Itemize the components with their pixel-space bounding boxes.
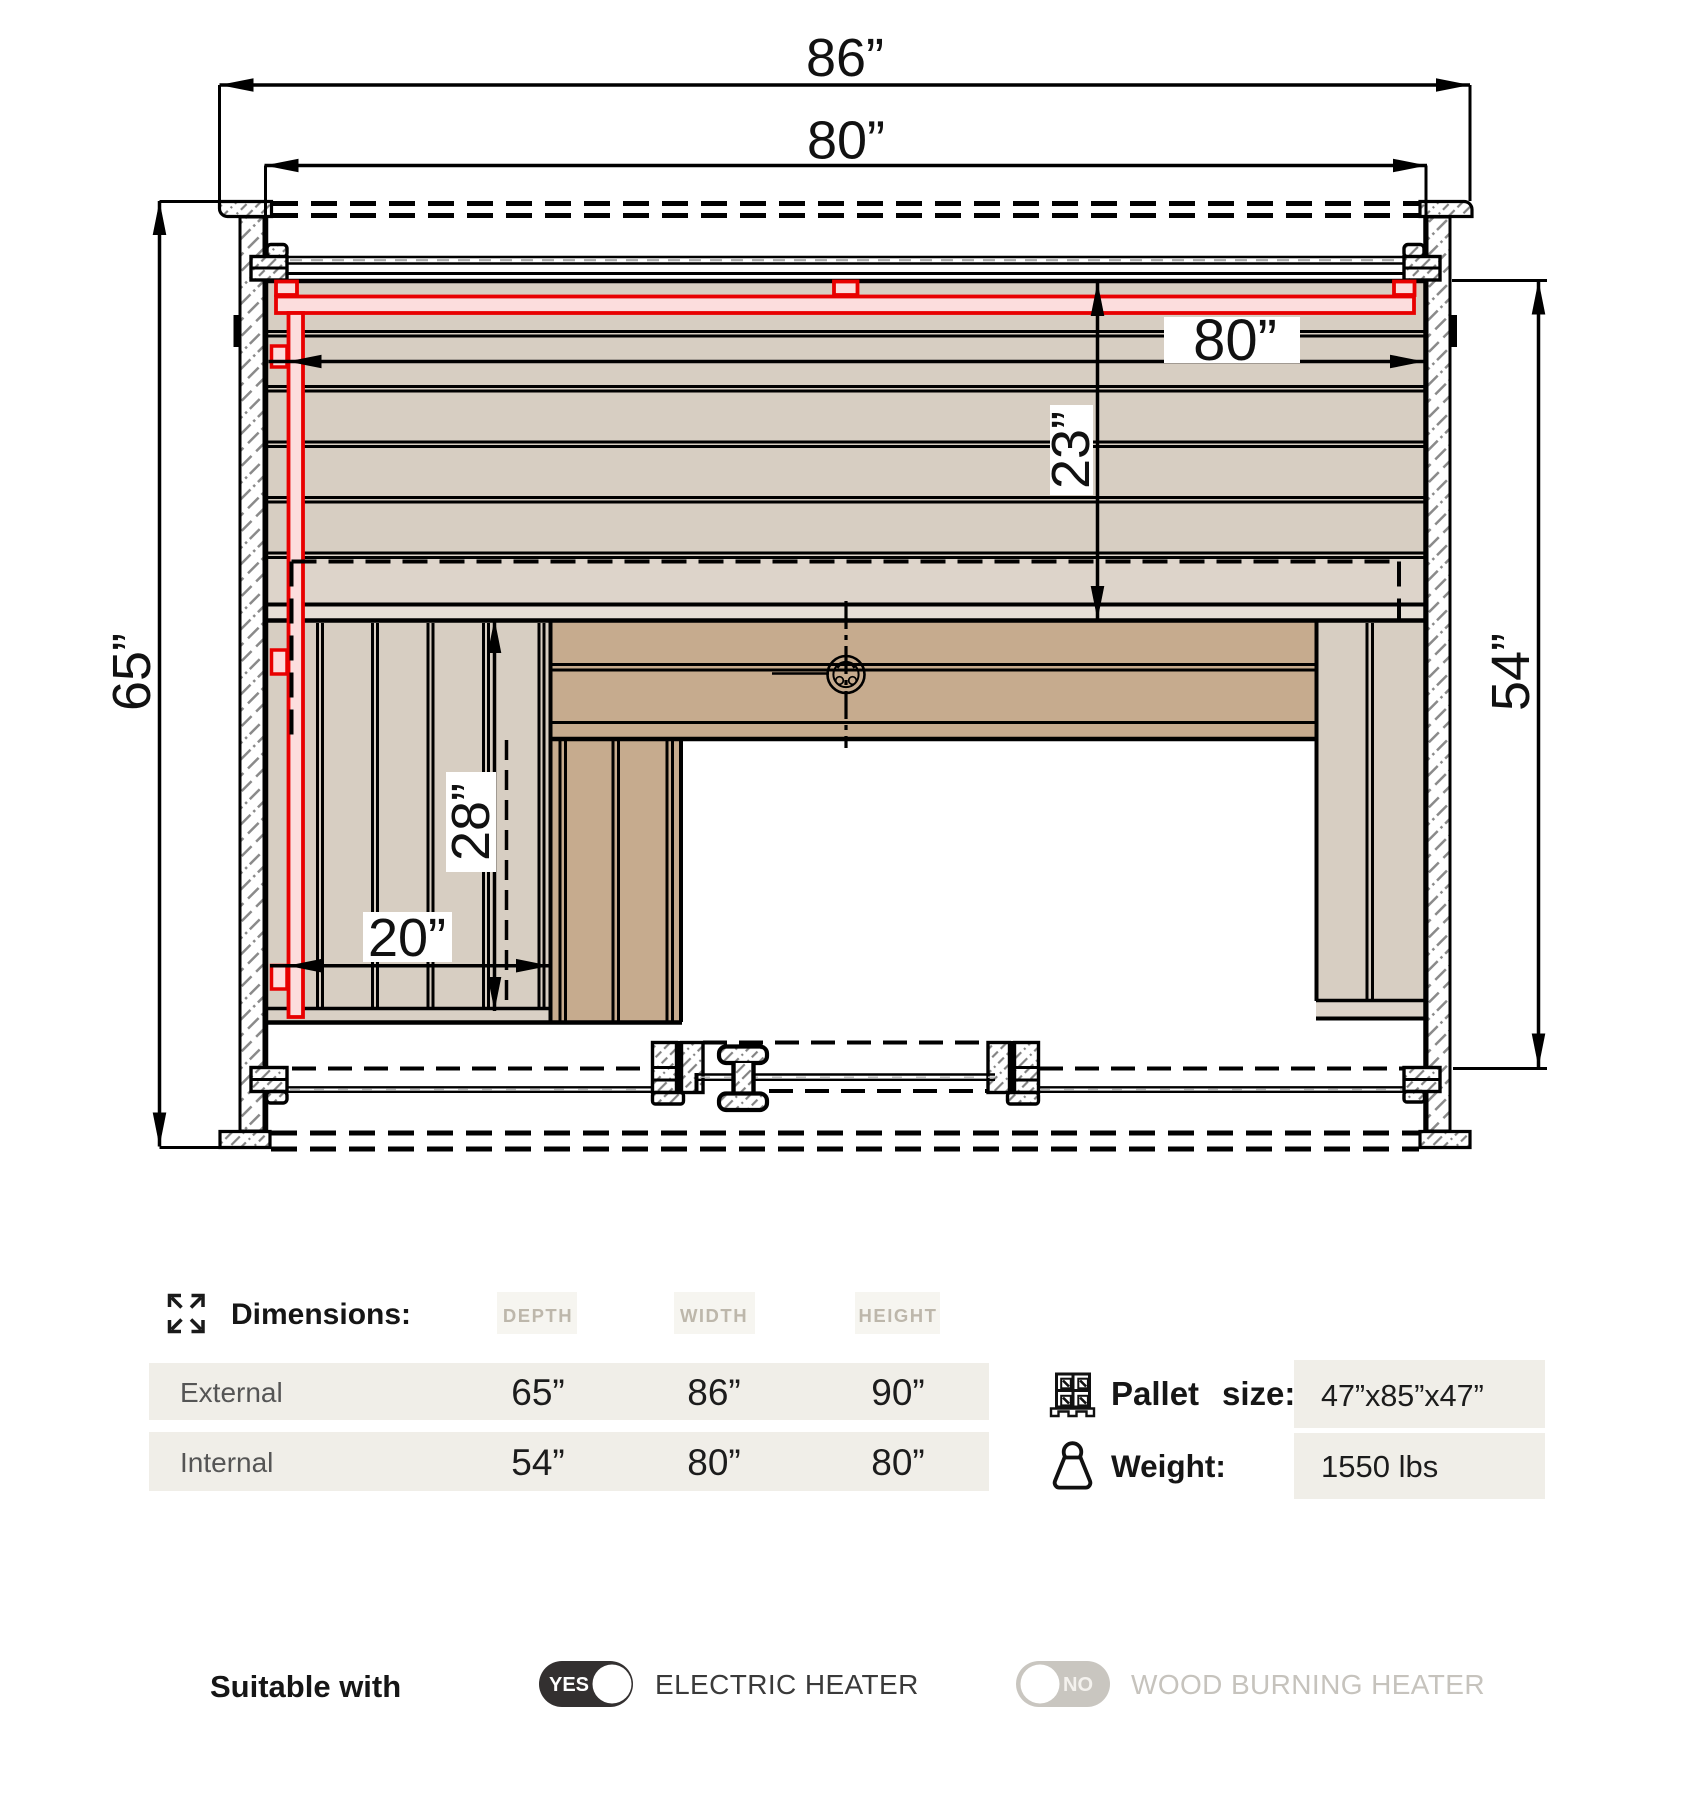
svg-text:47”x85”x47”: 47”x85”x47” <box>1321 1379 1484 1413</box>
svg-text:86”: 86” <box>806 28 884 88</box>
svg-text:80”: 80” <box>687 1442 740 1483</box>
svg-text:80”: 80” <box>1193 308 1277 373</box>
svg-text:Weight:: Weight: <box>1111 1448 1226 1484</box>
svg-text:NO: NO <box>1063 1674 1093 1696</box>
svg-text:Internal: Internal <box>180 1447 273 1478</box>
svg-text:65”: 65” <box>511 1372 564 1413</box>
svg-text:28”: 28” <box>441 783 501 861</box>
svg-text:23”: 23” <box>1041 411 1101 489</box>
svg-text:20”: 20” <box>368 908 446 968</box>
svg-text:WOOD BURNING HEATER: WOOD BURNING HEATER <box>1131 1669 1485 1700</box>
svg-text:54”: 54” <box>1481 633 1541 711</box>
svg-text:External: External <box>180 1377 283 1408</box>
svg-text:80”: 80” <box>871 1442 924 1483</box>
svg-text:ELECTRIC HEATER: ELECTRIC HEATER <box>655 1669 919 1700</box>
svg-text:HEIGHT: HEIGHT <box>859 1305 938 1326</box>
svg-text:DEPTH: DEPTH <box>503 1305 573 1326</box>
svg-text:1550 lbs: 1550 lbs <box>1321 1449 1438 1484</box>
svg-text:Pallet: Pallet <box>1111 1375 1199 1412</box>
svg-text:65”: 65” <box>102 633 162 711</box>
svg-text:Suitable with: Suitable with <box>210 1669 401 1704</box>
svg-text:86”: 86” <box>687 1372 740 1413</box>
svg-text:WIDTH: WIDTH <box>680 1305 748 1326</box>
svg-text:80”: 80” <box>807 111 885 171</box>
svg-text:54”: 54” <box>511 1442 564 1483</box>
svg-text:YES: YES <box>549 1674 589 1696</box>
svg-text:Dimensions:: Dimensions: <box>231 1298 411 1331</box>
svg-text:90”: 90” <box>871 1372 924 1413</box>
svg-text:size:: size: <box>1222 1375 1295 1412</box>
